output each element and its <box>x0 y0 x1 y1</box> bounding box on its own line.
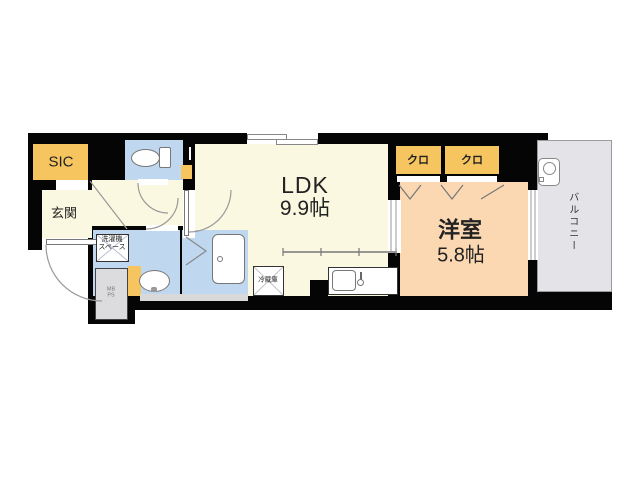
ldk-western-sliding-door <box>388 200 401 253</box>
entry-door-swing-area <box>42 238 88 310</box>
closet2-label: クロ <box>461 155 483 168</box>
toilet-icon <box>131 149 160 167</box>
genkan-label: 玄関 <box>51 207 77 222</box>
kitchen-faucet <box>357 279 364 286</box>
closet2-door-gap <box>447 176 497 182</box>
washbasin-faucet <box>151 287 157 292</box>
closet1-label: クロ <box>407 155 429 168</box>
closet1-door-gap <box>397 176 440 182</box>
toilet-vent-slit <box>189 147 191 160</box>
hallway-ldk-door-leaf <box>184 190 189 236</box>
western-room-name: 洋室 <box>438 217 482 242</box>
sic-label: SIC <box>48 153 73 170</box>
bathtub-drain <box>217 256 223 262</box>
washer-space-label: 洗濯機 スペース <box>98 236 125 252</box>
ldk-name: LDK <box>281 172 329 198</box>
western-room-size: 5.8帖 <box>437 245 485 268</box>
bath-apron-strip <box>140 294 248 301</box>
toilet-door-gap <box>138 179 168 185</box>
wall-balcony-bottom <box>528 292 612 310</box>
room-hallway <box>92 180 183 226</box>
ldk-window-pane-inner <box>276 139 318 145</box>
entry-door-leaf <box>46 239 103 245</box>
left-wall-end <box>28 250 42 312</box>
toilet-tank <box>159 147 171 168</box>
refrigerator-label: 冷蔵庫 <box>258 276 278 283</box>
sic-door-gap <box>56 180 88 190</box>
balcony-label: バルコニー <box>566 192 578 252</box>
toilet-side-accent <box>181 165 192 179</box>
floor-plan: SIC 玄関 LDK 9.9帖 洋室 5.8帖 クロ クロ バルコニー 洗濯機 … <box>0 0 640 480</box>
washroom-door-gap <box>146 225 178 231</box>
water-heater-drum <box>543 162 556 175</box>
ldk-size: 9.9帖 <box>280 197 330 221</box>
kitchen-sink-icon <box>332 270 356 291</box>
water-heater-valve <box>539 177 544 182</box>
meter-box-label: MB PS <box>107 287 115 300</box>
western-balcony-window <box>528 190 538 260</box>
kitchen-wall-notch <box>310 280 328 296</box>
